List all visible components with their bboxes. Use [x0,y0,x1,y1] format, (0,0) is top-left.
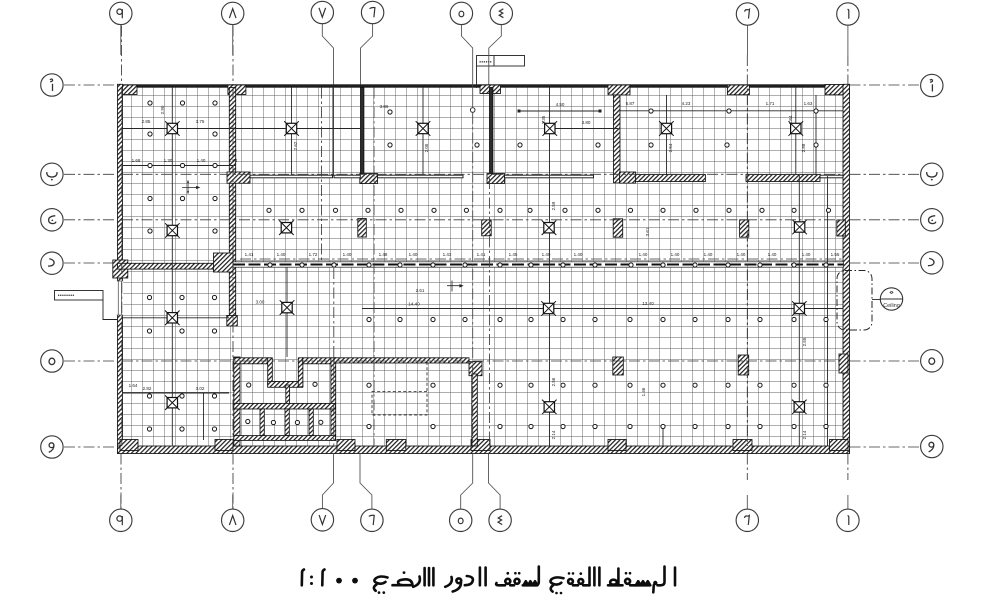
svg-text:4.50: 4.50 [556,102,565,107]
svg-text:1.40: 1.40 [704,252,713,257]
svg-text:2.54: 2.54 [668,143,673,152]
svg-text:4.23: 4.23 [682,101,691,106]
svg-text:2.56: 2.56 [551,377,556,386]
svg-text:3.86: 3.86 [380,104,389,109]
svg-text:1.48: 1.48 [379,252,388,257]
svg-text:14.40: 14.40 [408,302,420,307]
svg-text:2.35: 2.35 [541,115,546,124]
svg-text:1.45: 1.45 [509,252,518,257]
svg-text:1.71: 1.71 [766,101,775,106]
svg-text:1.40: 1.40 [409,252,418,257]
svg-text:1.43: 1.43 [443,252,452,257]
svg-text:2.85: 2.85 [142,119,151,124]
svg-text:1.40: 1.40 [768,252,777,257]
svg-text:3.02: 3.02 [196,386,205,391]
svg-text:1.30: 1.30 [164,158,173,163]
svg-text:1.40: 1.40 [639,252,648,257]
svg-text:2.14: 2.14 [802,430,807,439]
svg-text:1.64: 1.64 [129,383,138,388]
svg-text:1.40: 1.40 [671,252,680,257]
svg-text:2.14: 2.14 [551,430,556,439]
svg-text:2.62: 2.62 [293,141,298,150]
svg-text:2.90: 2.90 [160,105,165,114]
svg-text:1.55: 1.55 [831,252,840,257]
svg-text:1.40: 1.40 [277,252,286,257]
svg-text:1.66: 1.66 [641,387,646,396]
svg-text:1.84: 1.84 [788,115,793,124]
svg-text:3.61: 3.61 [645,227,650,236]
svg-text:1.40: 1.40 [197,158,206,163]
svg-text:2.61: 2.61 [416,288,425,293]
svg-text:1.41: 1.41 [477,252,486,257]
svg-text:3.00: 3.00 [256,300,265,305]
svg-text:2.82: 2.82 [143,386,152,391]
svg-text:2.59: 2.59 [551,201,556,210]
svg-text:13.40: 13.40 [642,301,654,306]
svg-text:1.40: 1.40 [343,252,352,257]
svg-text:1.40: 1.40 [574,252,583,257]
svg-text:1.40: 1.40 [737,252,746,257]
svg-text:1.40: 1.40 [802,252,811,257]
svg-text:Ceiling: Ceiling [883,303,899,309]
svg-text:1.72: 1.72 [309,252,318,257]
svg-text:5.87: 5.87 [626,101,635,106]
svg-text:1.52: 1.52 [229,158,238,163]
svg-text:1.40: 1.40 [542,252,551,257]
svg-text:2.55: 2.55 [802,337,807,346]
svg-text:1.63: 1.63 [804,101,813,106]
svg-text:1.41: 1.41 [245,252,254,257]
svg-text:2.88: 2.88 [801,143,806,152]
svg-text:3.75: 3.75 [196,119,205,124]
svg-text:3.80: 3.80 [582,120,591,125]
svg-text:2.05: 2.05 [424,143,429,152]
svg-text:1.68: 1.68 [132,158,141,163]
